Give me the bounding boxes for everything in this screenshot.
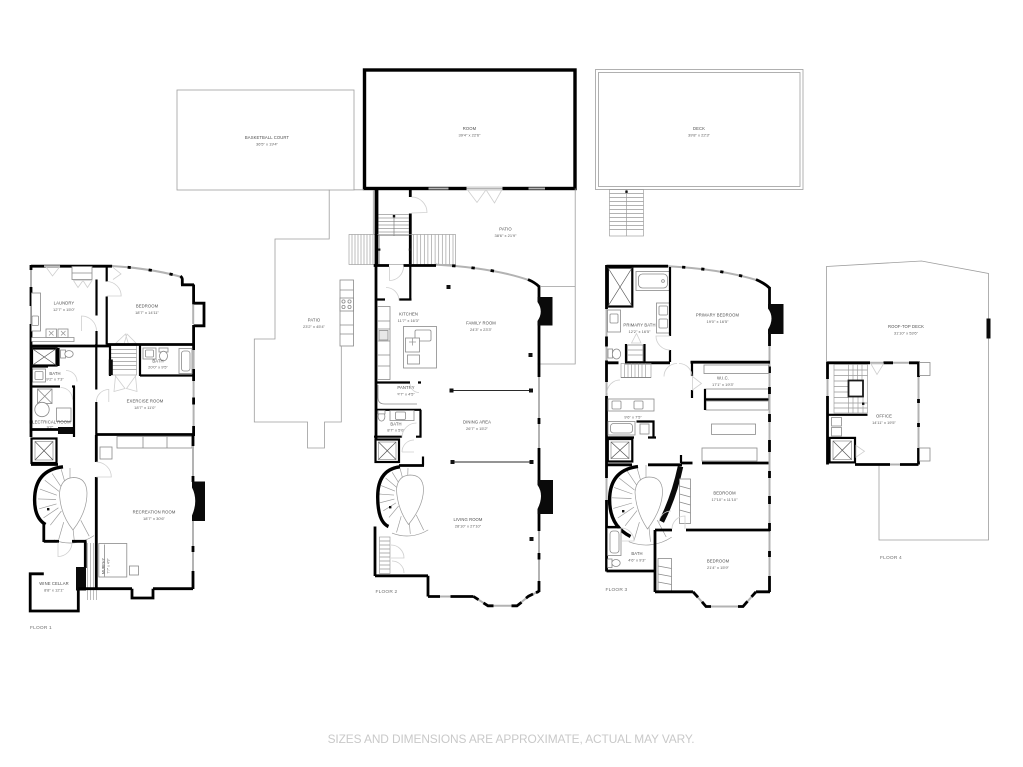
svg-text:39'4" x 22'6": 39'4" x 22'6"	[459, 133, 482, 138]
svg-text:BEDROOM: BEDROOM	[713, 491, 736, 496]
svg-text:ROOF-TOP DECK: ROOF-TOP DECK	[888, 324, 924, 329]
svg-text:4'6" x 9'3": 4'6" x 9'3"	[628, 558, 646, 563]
svg-text:BASKETBALL COURT: BASKETBALL COURT	[245, 135, 290, 140]
svg-text:KITCHEN: KITCHEN	[399, 312, 418, 317]
svg-text:SIZES AND DIMENSIONS ARE APPRO: SIZES AND DIMENSIONS ARE APPROXIMATE, AC…	[328, 732, 695, 746]
svg-text:LAUNDRY: LAUNDRY	[54, 301, 75, 306]
svg-text:FAMILY ROOM: FAMILY ROOM	[466, 321, 496, 326]
svg-text:PATIO: PATIO	[308, 318, 321, 323]
svg-text:26'7" x 15'2": 26'7" x 15'2"	[466, 426, 489, 431]
svg-text:LIVING ROOM: LIVING ROOM	[453, 517, 482, 522]
svg-text:W.I.C.: W.I.C.	[717, 376, 729, 381]
svg-text:DINING AREA: DINING AREA	[463, 420, 491, 425]
svg-text:WINE CELLAR: WINE CELLAR	[39, 581, 69, 586]
svg-text:FLOOR 1: FLOOR 1	[30, 625, 52, 631]
svg-text:21'4" x 15'9": 21'4" x 15'9"	[707, 565, 730, 570]
svg-text:18'7" x 30'6": 18'7" x 30'6"	[143, 516, 166, 521]
svg-text:ROOM: ROOM	[463, 126, 477, 131]
svg-text:39'8" x 22'3": 39'8" x 22'3"	[688, 133, 711, 138]
svg-text:38'6" x 21'9": 38'6" x 21'9"	[495, 233, 518, 238]
svg-text:36'5" x 19'4": 36'5" x 19'4"	[256, 142, 279, 147]
svg-text:28'10" x 27'10": 28'10" x 27'10"	[455, 524, 482, 529]
svg-text:31'10" x 53'6": 31'10" x 53'6"	[894, 331, 919, 336]
svg-text:BEDROOM: BEDROOM	[136, 304, 159, 309]
svg-text:18'7" x 11'0": 18'7" x 11'0"	[134, 405, 156, 410]
svg-text:11'7" x 16'3": 11'7" x 16'3"	[398, 318, 420, 323]
svg-text:BATH: BATH	[152, 359, 163, 364]
svg-text:12'7" x 15'0": 12'7" x 15'0"	[53, 307, 76, 312]
svg-text:8'7" x 5'0": 8'7" x 5'0"	[387, 428, 405, 433]
svg-text:12'2" x 16'5": 12'2" x 16'5"	[629, 329, 652, 334]
svg-text:FLOOR 2: FLOOR 2	[376, 589, 398, 595]
svg-text:24'3" x 23'3": 24'3" x 23'3"	[470, 327, 493, 332]
svg-text:19'0" x 16'5": 19'0" x 16'5"	[707, 319, 730, 324]
svg-text:17'10" x 11'10": 17'10" x 11'10"	[711, 497, 738, 502]
svg-text:PRIMARY BEDROOM: PRIMARY BEDROOM	[696, 313, 740, 318]
svg-text:9'6" x 7'5": 9'6" x 7'5"	[624, 415, 642, 420]
svg-text:14'11" x 19'5": 14'11" x 19'5"	[872, 420, 896, 425]
svg-text:20'0" x 9'5": 20'0" x 9'5"	[148, 365, 168, 370]
svg-text:BEDROOM: BEDROOM	[707, 559, 730, 564]
svg-text:EXERCISE ROOM: EXERCISE ROOM	[127, 399, 164, 404]
svg-text:8'8" x 12'1": 8'8" x 12'1"	[44, 588, 64, 593]
svg-text:BATH: BATH	[49, 371, 60, 376]
svg-text:18'7" x 14'11": 18'7" x 14'11"	[135, 310, 159, 315]
svg-text:BATH: BATH	[631, 551, 642, 556]
svg-text:PATIO: PATIO	[499, 227, 512, 232]
svg-text:9'2" x 7'3": 9'2" x 7'3"	[46, 377, 64, 382]
svg-text:BATH: BATH	[390, 422, 401, 427]
svg-text:FLOOR 4: FLOOR 4	[880, 555, 902, 561]
svg-text:7'7" x 4'9": 7'7" x 4'9"	[107, 558, 111, 574]
svg-text:MURPHY: MURPHY	[102, 557, 106, 574]
svg-text:17'1" x 19'3": 17'1" x 19'3"	[712, 382, 735, 387]
svg-text:RECREATION ROOM: RECREATION ROOM	[133, 510, 176, 515]
svg-text:FLOOR 3: FLOOR 3	[606, 587, 628, 593]
svg-text:DECK: DECK	[693, 126, 705, 131]
svg-text:OFFICE: OFFICE	[876, 414, 892, 419]
svg-text:PRIMARY BATH: PRIMARY BATH	[623, 323, 655, 328]
svg-text:23'2" x 45'4": 23'2" x 45'4"	[303, 324, 326, 329]
